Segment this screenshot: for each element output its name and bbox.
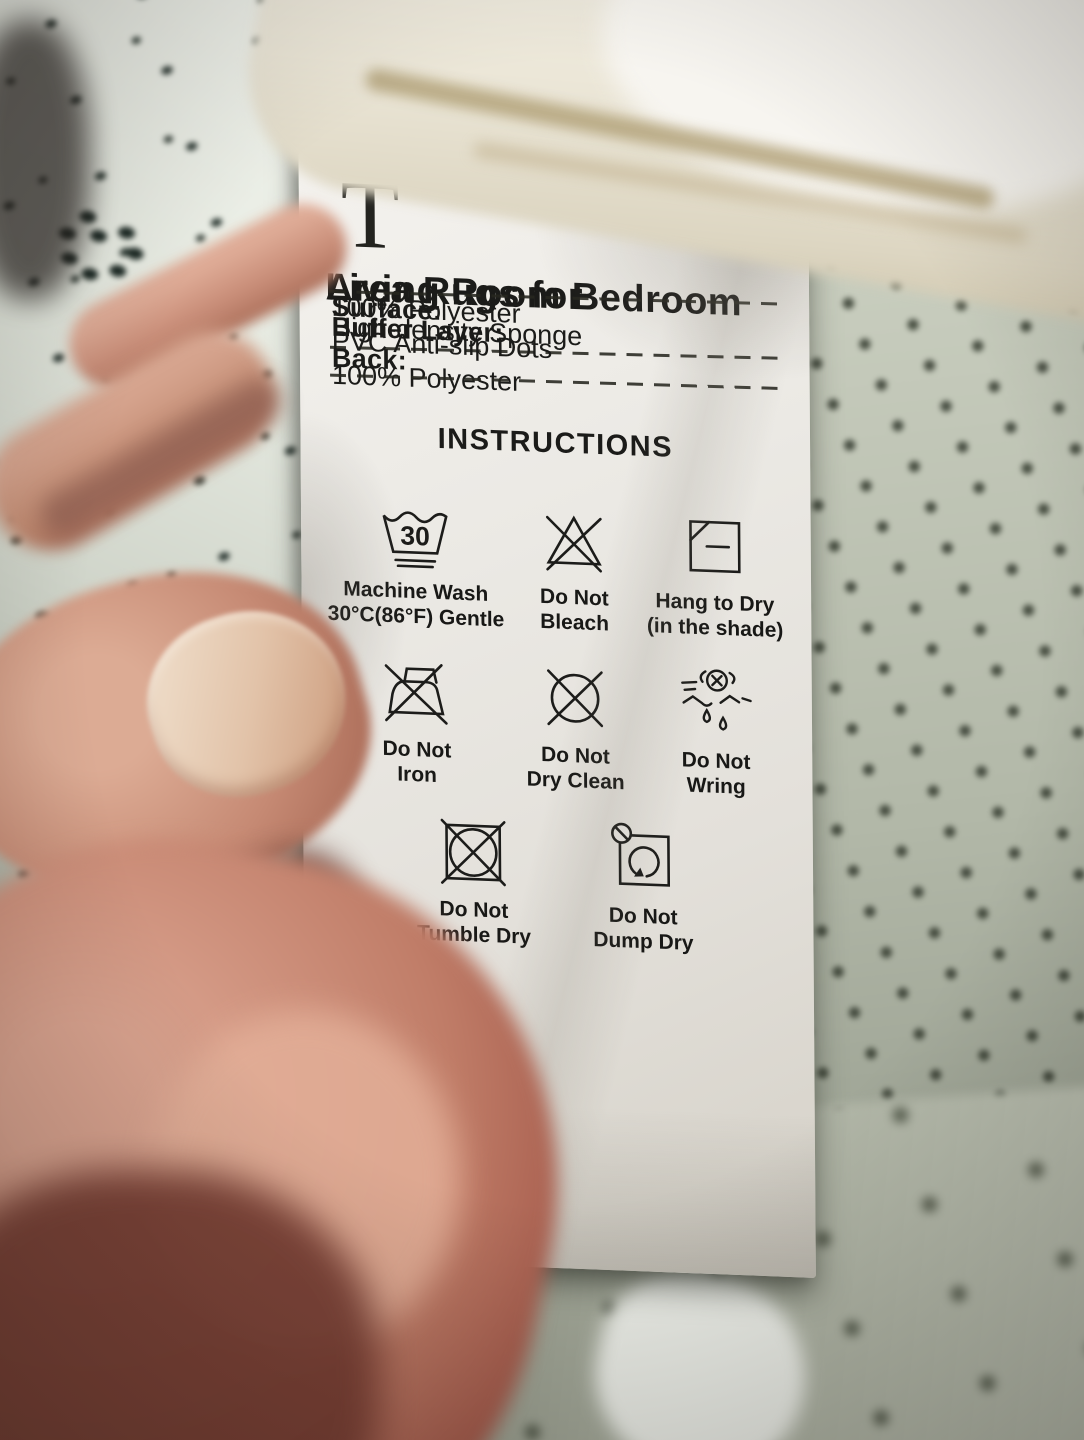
care-caption: Do Not Dry Clean <box>526 741 624 795</box>
care-caption: Do Not Iron <box>382 736 451 789</box>
material-value: PVC Anti-slip Dots 100% Polyester <box>332 324 553 401</box>
care-caption: Do Not Wring <box>682 747 751 800</box>
wash-temperature: 30 <box>401 520 431 551</box>
care-item-do-not-bleach: Do Not Bleach <box>537 502 612 637</box>
care-item-do-not-iron: Do Not Iron <box>379 654 454 789</box>
care-caption: Machine Wash 30°C(86°F) Gentle <box>327 576 504 633</box>
care-caption: Hang to Dry (in the shade) <box>647 588 784 643</box>
material-row-back: Back: PVC Anti-slip Dots 100% Polyester <box>326 357 784 375</box>
do-not-dry-clean-icon <box>538 660 612 737</box>
care-item-hang-to-dry: Hang to Dry (in the shade) <box>646 506 783 643</box>
do-not-tumble-dry-icon <box>436 814 510 891</box>
care-caption: Do Not Bleach <box>540 584 609 637</box>
do-not-dump-dry-icon <box>606 821 680 898</box>
care-item-do-not-wring: Do Not Wring <box>678 665 753 800</box>
care-item-do-not-dry-clean: Do Not Dry Clean <box>526 659 625 795</box>
do-not-iron-icon <box>379 654 453 731</box>
do-not-wring-icon <box>678 665 752 742</box>
care-item-machine-wash: 30 Machine Wash 30°C(86°F) Gentle <box>327 494 504 633</box>
photo-rug-care-label: T Area Rugs for Living Room Bedroom Surf… <box>0 0 1084 1440</box>
care-symbol-grid: 30 Machine Wash 30°C(86°F) Gentle Do Not… <box>327 494 787 802</box>
do-not-bleach-icon <box>537 502 611 579</box>
care-item-do-not-dump-dry: Do Not Dump Dry <box>592 820 693 956</box>
machine-wash-icon: 30 <box>378 496 452 573</box>
care-caption: Do Not Dump Dry <box>593 902 694 956</box>
hang-to-dry-icon <box>677 507 751 584</box>
instructions-heading: INSTRUCTIONS <box>326 419 784 470</box>
